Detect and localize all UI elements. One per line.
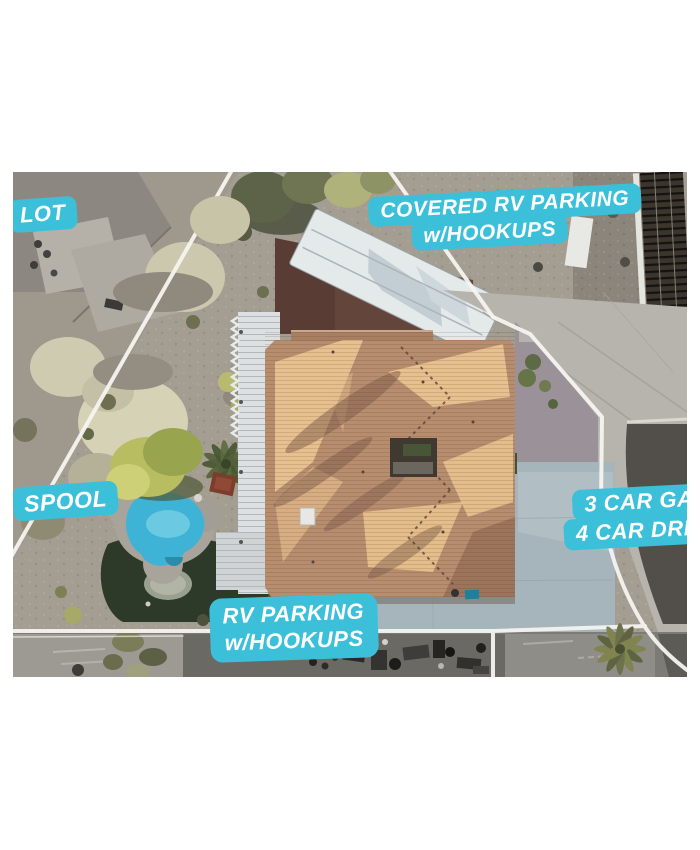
- label-rv-parking-line1: RV PARKING: [222, 599, 364, 629]
- label-rv-parking: RV PARKING w/HOOKUPS: [209, 593, 379, 662]
- courtyard-notch: [390, 438, 437, 477]
- label-lot: LOT: [13, 196, 78, 233]
- tree-over-line: [190, 196, 250, 244]
- aerial-photo[interactable]: LOT COVERED RV PARKING w/HOOKUPS SPOOL 3…: [13, 172, 687, 677]
- label-garage-driveway: 3 CAR GARAGE 4 CAR DRIVEWAY: [562, 479, 687, 550]
- page: LOT COVERED RV PARKING w/HOOKUPS SPOOL 3…: [0, 0, 700, 850]
- label-rv-parking-line2: w/HOOKUPS: [224, 625, 364, 655]
- rooftop-unit: [300, 508, 315, 525]
- main-house-roof: [265, 331, 515, 604]
- utility-cart: [465, 590, 479, 600]
